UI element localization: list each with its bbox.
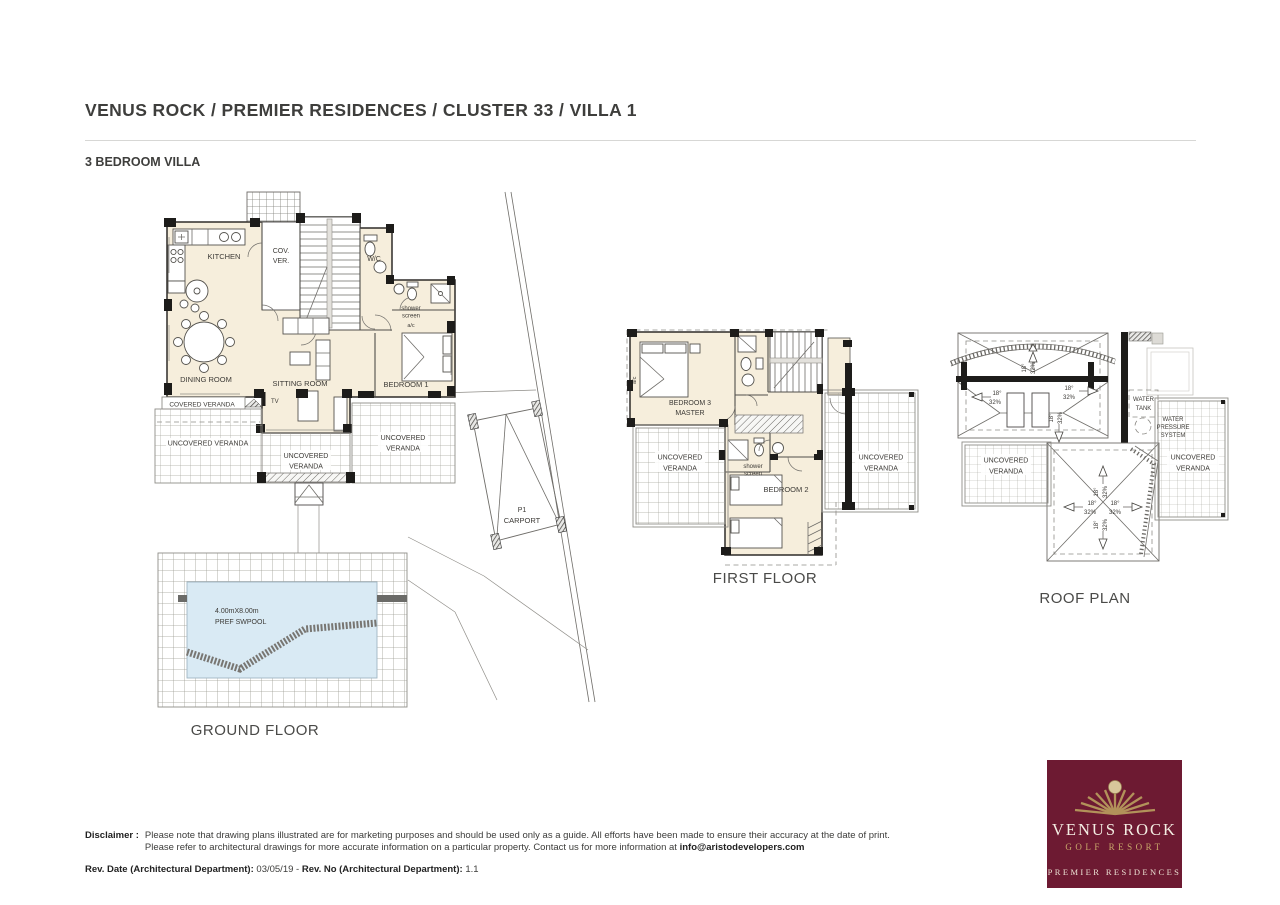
veranda-left-label2: VERANDA — [663, 466, 697, 473]
water-tank-box — [1129, 390, 1158, 417]
uncovered-right-label2: VERANDA — [386, 446, 420, 453]
carport-label: CARPORT — [504, 516, 541, 525]
upper-roof — [951, 333, 1115, 442]
slope-label: 18° — [992, 391, 1002, 397]
ac-label: a/c — [407, 323, 415, 329]
page-title: VENUS ROCK / PREMIER RESIDENCES / CLUSTE… — [85, 100, 637, 121]
rev-no-label: Rev. No (Architectural Department): — [302, 864, 463, 875]
pool-type-label: PREF SWPOOL — [215, 619, 266, 626]
porch — [295, 483, 323, 553]
lower-roof — [1047, 443, 1159, 561]
slope-label: 32% — [1103, 518, 1109, 531]
plot-boundary — [505, 192, 595, 702]
water-tank-label2: TANK — [1136, 406, 1152, 412]
uncovered-veranda-left — [633, 425, 728, 527]
disclaimer-email[interactable]: info@aristodevelopers.com — [680, 842, 805, 853]
logo-sub: GOLF RESORT — [1065, 842, 1163, 852]
ground-floor-plan: KITCHEN COV. VER. W/C shower screen a/c … — [140, 185, 620, 725]
disclaimer-label: Disclaimer : — [85, 830, 139, 854]
first-floor-title: FIRST FLOOR — [705, 570, 825, 587]
slope-label: 32% — [1109, 510, 1122, 516]
shower-label1: shower — [401, 306, 420, 312]
roof-veranda-left-label1: UNCOVERED — [984, 458, 1029, 465]
covver-label1: COV. — [273, 248, 290, 255]
slope-label: 32% — [1063, 395, 1076, 401]
slope-label: 18° — [1110, 501, 1120, 507]
uncovered-right-label1: UNCOVERED — [381, 435, 426, 442]
uncovered-center-label2: VERANDA — [289, 464, 323, 471]
slope-label: 32% — [1103, 485, 1109, 498]
carport-no-label: P1 — [518, 507, 527, 514]
rev-date-label: Rev. Date (Architectural Department): — [85, 864, 254, 875]
pressure-system-circle — [1135, 418, 1151, 434]
slope-label: 32% — [1031, 361, 1037, 374]
dining-table — [174, 312, 235, 373]
roof-veranda-left-label2: VERANDA — [989, 469, 1023, 476]
bedroom2-label: BEDROOM 2 — [763, 485, 808, 494]
uncovered-center-label1: UNCOVERED — [284, 453, 329, 460]
slope-label: 18° — [1094, 520, 1100, 530]
logo-brand: VENUS ROCK — [1052, 820, 1177, 840]
ground-floor-title: GROUND FLOOR — [180, 722, 330, 739]
veranda-right-label1: UNCOVERED — [859, 455, 904, 462]
shower-label2: screen — [402, 314, 420, 320]
bedroom1-bed — [402, 333, 452, 381]
swimming-pool — [178, 582, 407, 678]
roof-veranda-right-label2: VERANDA — [1176, 466, 1210, 473]
pool-size-label: 4.00mX8.00m — [215, 608, 259, 615]
slope-label: 18° — [1094, 487, 1100, 497]
shower-label1: shower — [743, 464, 762, 470]
slope-label: 18° — [1087, 501, 1097, 507]
ac-label: a/c — [632, 376, 638, 384]
logo-tagline: PREMIER RESIDENCES — [1048, 867, 1182, 877]
staircase — [770, 332, 822, 392]
slope-label: 32% — [1084, 510, 1097, 516]
wc-label: W/C — [367, 256, 381, 263]
title-divider — [85, 140, 1196, 141]
floor-plan-sheet: VENUS ROCK / PREMIER RESIDENCES / CLUSTE… — [0, 0, 1280, 905]
shower-label2: screen — [744, 472, 762, 478]
dining-label: DINING ROOM — [180, 375, 232, 384]
wardrobes — [735, 415, 803, 433]
first-floor-plan: BEDROOM 3 MASTER a/c shower screen BEDRO… — [618, 322, 938, 572]
kitchen-label: KITCHEN — [208, 252, 241, 261]
bedroom3-label1: BEDROOM 3 — [669, 400, 711, 407]
rev-date-value: 03/05/19 — [256, 864, 293, 875]
veranda-left-label1: UNCOVERED — [658, 455, 703, 462]
slope-label: 32% — [989, 400, 1002, 406]
disclaimer-line2: Please refer to architectural drawings f… — [145, 842, 677, 853]
veranda-right-label2: VERANDA — [864, 466, 898, 473]
slope-label: 18° — [1022, 363, 1028, 373]
slope-label: 18° — [1064, 386, 1074, 392]
bedroom1-label: BEDROOM 1 — [383, 380, 428, 389]
disclaimer-line1: Please note that drawing plans illustrat… — [145, 830, 890, 841]
golf-resort-emblem-icon — [1069, 778, 1161, 818]
page-subtitle: 3 BEDROOM VILLA — [85, 155, 200, 169]
roof-plan-title: ROOF PLAN — [1025, 590, 1145, 607]
venus-rock-logo: VENUS ROCK GOLF RESORT PREMIER RESIDENCE… — [1047, 760, 1182, 888]
revision-line: Rev. Date (Architectural Department): 03… — [85, 864, 479, 875]
tv-label: TV — [271, 399, 279, 405]
water-tank-label1: WATER — [1133, 397, 1155, 403]
covered-veranda-label: COVERED VERANDA — [169, 402, 235, 409]
covver-label2: VER. — [273, 258, 289, 265]
sitting-label: SITTING ROOM — [273, 379, 328, 388]
roof-veranda-right-label1: UNCOVERED — [1171, 455, 1216, 462]
uncovered-veranda-left-label: UNCOVERED VERANDA — [168, 441, 249, 448]
roof-plan: 18° 32% 18° 32% 18° 32% 18° 32% WATER TA… — [945, 320, 1245, 570]
rev-no-value: 1.1 — [465, 864, 478, 875]
slope-label: 18° — [1049, 413, 1055, 423]
disclaimer-text: Please note that drawing plans illustrat… — [145, 830, 890, 854]
bedroom3-label2: MASTER — [675, 410, 704, 417]
staircase — [300, 217, 360, 330]
slope-label: 32% — [1058, 411, 1064, 424]
rev-separator: - — [296, 864, 299, 875]
disclaimer: Disclaimer : Please note that drawing pl… — [85, 830, 1205, 854]
